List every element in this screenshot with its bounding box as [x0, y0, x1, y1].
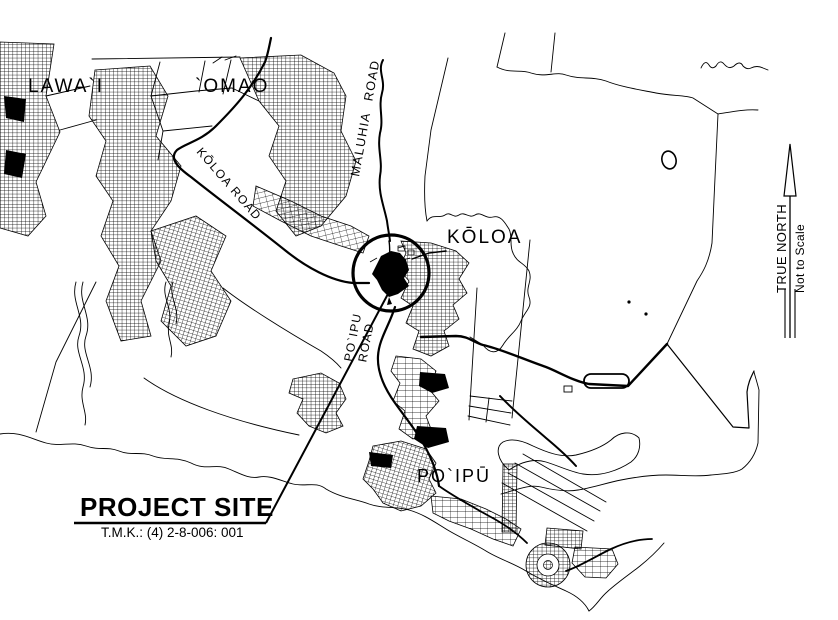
- tmk-label: T.M.K.: (4) 2-8-006: 001: [101, 525, 244, 540]
- parcel-cluster-left-edge: [0, 42, 60, 236]
- north-arrow: TRUE NORTH Not to Scale: [774, 144, 807, 338]
- project-site-callout: PROJECT SITE T.M.K.: (4) 2-8-006: 001: [74, 492, 274, 540]
- circular-development-center: [544, 561, 553, 570]
- project-site-label: PROJECT SITE: [80, 492, 274, 522]
- true-north-label: TRUE NORTH: [774, 204, 789, 293]
- label-maluhia-road: MALUHIA ROAD: [348, 59, 382, 178]
- weliweli-road: [421, 336, 667, 386]
- label-poipu: PO`IPŪ: [417, 466, 491, 486]
- parcel-cluster-lawai-south: [151, 216, 231, 346]
- not-to-scale-label: Not to Scale: [793, 224, 807, 293]
- parcel-cluster-poipu-point: [572, 547, 618, 578]
- north-arrow-head: [784, 144, 796, 196]
- maluhia-road: [379, 60, 390, 241]
- label-lawai: LAWA`I: [28, 76, 104, 97]
- parcel-cluster-koloa-south: [391, 356, 439, 439]
- project-site-parcel: [372, 251, 409, 297]
- small-pond: [660, 149, 678, 170]
- parcel-cluster-southwest: [289, 373, 346, 433]
- label-koloa-road: KŌLOA ROAD: [194, 145, 265, 223]
- label-koloa: KŌLOA: [447, 227, 522, 248]
- label-poipu-road: PO`IPU ROAD: [341, 312, 378, 366]
- vicinity-map-page: LAWA`I `OMAO KŌLOA PO`IPŪ KŌLOA ROAD MAL…: [0, 0, 838, 620]
- label-omao: `OMAO: [195, 76, 269, 97]
- map-canvas: LAWA`I `OMAO KŌLOA PO`IPŪ KŌLOA ROAD MAL…: [0, 0, 838, 620]
